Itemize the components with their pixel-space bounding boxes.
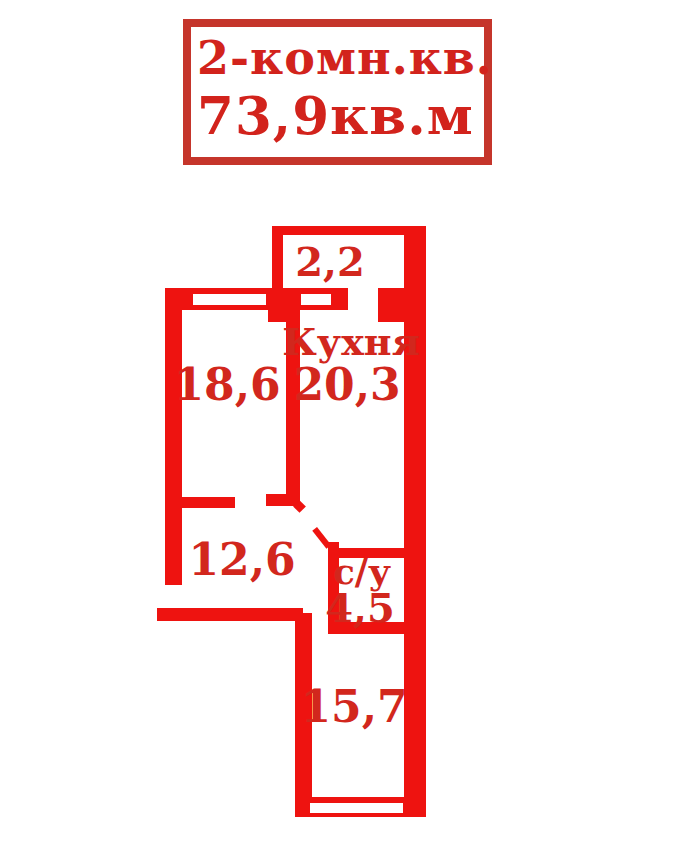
label-balcony-area: 2,2 (295, 238, 365, 285)
label-kitchen-area: 20,3 (293, 359, 400, 410)
wall-outer-left (165, 288, 182, 585)
wall-balcony-left (272, 226, 283, 290)
label-kitchen-name: Кухня (282, 319, 419, 364)
label-room2-area: 15,7 (300, 681, 407, 732)
label-hall-area: 12,6 (188, 534, 295, 585)
title-line-apartment-type: 2-комн.кв. (197, 31, 484, 85)
wall-balcony-top (272, 226, 426, 235)
window-kitchen (301, 294, 331, 305)
window-room2 (310, 803, 403, 813)
title-box: 2-комн.кв. 73,9кв.м (183, 19, 492, 165)
label-bathroom-area: 4,5 (325, 584, 395, 631)
wall-hall-bottom (157, 608, 303, 621)
floorplan-page: 2-комн.кв. 73,9кв.м (0, 0, 675, 848)
window-room1 (193, 294, 266, 305)
label-room1-area: 18,6 (173, 359, 280, 410)
wall-room1-bottom-left (181, 497, 235, 508)
title-line-total-area: 73,9кв.м (197, 85, 484, 145)
door-balcony (348, 288, 378, 310)
